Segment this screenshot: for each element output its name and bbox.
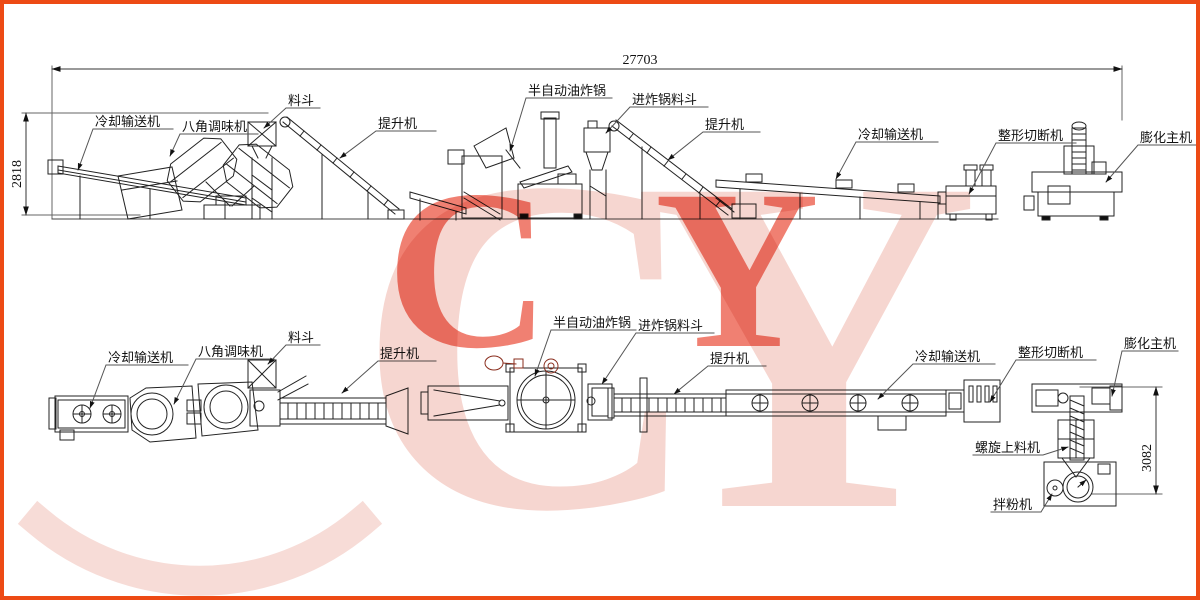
label-fryer-elevation: 半自动油炸锅 (528, 83, 606, 98)
label-cooling-conveyor-2-elevation: 冷却输送机 (858, 127, 923, 142)
dimension-plan-right-height-value: 3082 (1140, 444, 1155, 472)
label-cutter-plan: 整形切断机 (1018, 345, 1083, 360)
label-hopper-elevation: 料斗 (288, 93, 314, 108)
label-fryer-feed-hopper-elevation: 进炸锅料斗 (632, 92, 697, 107)
label-cooling-conveyor-1-plan: 冷却输送机 (108, 350, 173, 365)
label-seasoning-elevation: 八角调味机 (182, 119, 247, 134)
shaping-cutting-machine-elevation (938, 165, 996, 220)
label-extruder-plan: 膨化主机 (1124, 336, 1176, 351)
elevator-2-elevation (609, 120, 756, 219)
cooling-conveyor-1-plan (49, 396, 128, 440)
drawing-canvas: 27703 2818 3082 (0, 0, 1200, 600)
elevation-view: 冷却输送机 八角调味机 料斗 提升机 半自动油炸锅 进炸锅料斗 提升机 冷却输送… (48, 83, 1196, 220)
shaping-cutting-machine-plan (946, 380, 1000, 422)
label-cooling-conveyor-1-elevation: 冷却输送机 (95, 114, 160, 129)
label-fryer-plan: 半自动油炸锅 (553, 315, 631, 330)
label-screw-feeder-plan: 螺旋上料机 (975, 440, 1040, 455)
label-cutter-elevation: 整形切断机 (998, 128, 1063, 143)
cooling-conveyor-2-elevation (716, 174, 940, 219)
plan-view: 冷却输送机 八角调味机 料斗 提升机 半自动油炸锅 进炸锅料斗 提升机 冷却输送… (49, 315, 1178, 512)
hopper-elevation (248, 122, 276, 219)
semi-auto-fryer-elevation (410, 112, 582, 220)
elevator-1-elevation (280, 117, 404, 219)
screw-feeder-plan (1058, 396, 1094, 477)
label-elevator-2-elevation: 提升机 (705, 117, 744, 132)
label-elevator-1-plan: 提升机 (380, 346, 419, 361)
powder-mixer-plan (1044, 462, 1116, 506)
label-extruder-elevation: 膨化主机 (1140, 130, 1192, 145)
dimension-elevation-height-value: 2818 (10, 160, 25, 188)
drawing-sheet: 27703 2818 3082 (0, 0, 1200, 600)
label-powder-mixer-plan: 拌粉机 (993, 497, 1032, 512)
fryer-feed-hopper-elevation (584, 121, 610, 219)
elevator-1-plan (250, 376, 408, 434)
watermark-arc (39, 522, 361, 581)
cooling-conveyor-2-plan (726, 390, 946, 430)
label-elevator-2-plan: 提升机 (710, 351, 749, 366)
dimension-overall-length: 27703 (52, 53, 1122, 219)
extruder-main-machine-plan (1032, 384, 1122, 412)
label-seasoning-plan: 八角调味机 (198, 344, 263, 359)
semi-auto-fryer-plan (421, 356, 586, 432)
label-elevator-1-elevation: 提升机 (378, 116, 417, 131)
dimension-overall-length-value: 27703 (623, 53, 658, 68)
hopper-plan (248, 360, 276, 388)
label-cooling-conveyor-2-plan: 冷却输送机 (915, 349, 980, 364)
label-fryer-feed-hopper-plan: 进炸锅料斗 (638, 318, 703, 333)
elevator-2-plan (608, 378, 726, 432)
octagon-seasoning-machine-plan (130, 382, 258, 442)
label-hopper-plan: 料斗 (288, 330, 314, 345)
